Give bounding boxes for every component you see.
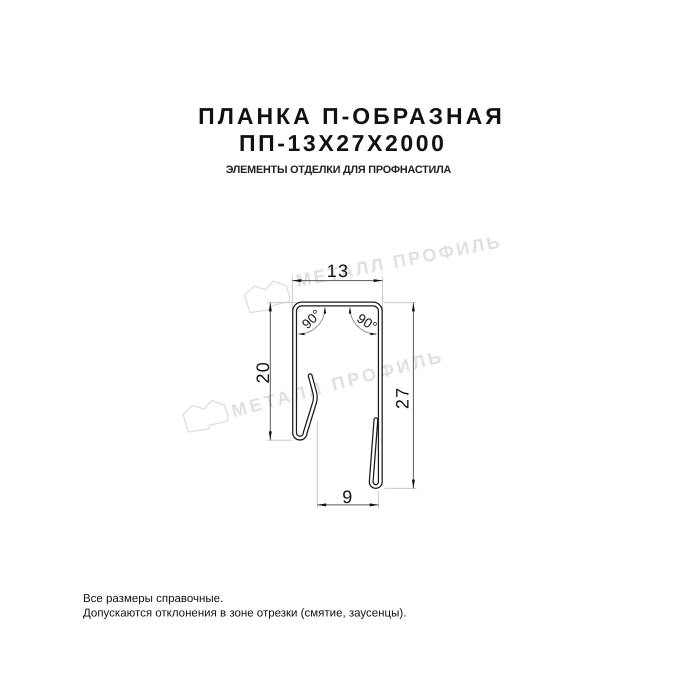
svg-text:20: 20 bbox=[253, 361, 273, 383]
svg-text:Допускаются отклонения в зоне: Допускаются отклонения в зоне отрезки (с… bbox=[83, 608, 406, 620]
svg-text:ПЛАНКА П-ОБРАЗНАЯ: ПЛАНКА П-ОБРАЗНАЯ bbox=[198, 103, 505, 129]
svg-text:Все размеры справочные.: Все размеры справочные. bbox=[83, 593, 223, 605]
svg-text:ПП-13Х27Х2000: ПП-13Х27Х2000 bbox=[239, 130, 447, 156]
svg-text:27: 27 bbox=[393, 387, 413, 409]
svg-text:9: 9 bbox=[342, 487, 352, 507]
svg-text:13: 13 bbox=[327, 261, 349, 281]
svg-text:ЭЛЕМЕНТЫ ОТДЕЛКИ ДЛЯ ПРОФНАСТИ: ЭЛЕМЕНТЫ ОТДЕЛКИ ДЛЯ ПРОФНАСТИЛА bbox=[226, 164, 452, 176]
